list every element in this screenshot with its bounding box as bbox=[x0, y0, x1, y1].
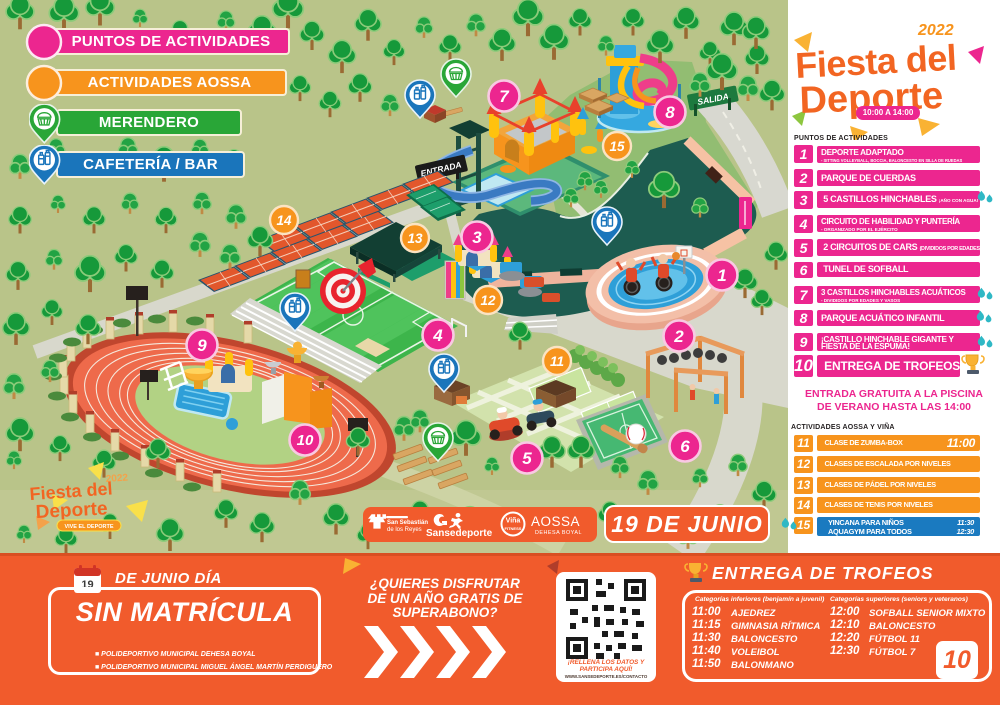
svg-text:14: 14 bbox=[276, 213, 292, 228]
svg-text:AOSSA: AOSSA bbox=[531, 514, 580, 529]
svg-text:5: 5 bbox=[522, 449, 532, 468]
svg-text:4: 4 bbox=[432, 326, 443, 345]
svg-text:VIVE EL DEPORTE: VIVE EL DEPORTE bbox=[64, 524, 113, 530]
svg-text:DEHESA BOYAL: DEHESA BOYAL bbox=[535, 530, 582, 536]
svg-text:Sansedeporte: Sansedeporte bbox=[426, 528, 493, 539]
svg-text:3: 3 bbox=[472, 228, 482, 247]
svg-text:Viña: Viña bbox=[506, 518, 521, 525]
svg-text:6: 6 bbox=[680, 437, 690, 456]
svg-text:1: 1 bbox=[717, 266, 726, 285]
svg-text:FITNESS: FITNESS bbox=[505, 526, 522, 531]
svg-text:de los Reyes: de los Reyes bbox=[387, 527, 422, 533]
svg-text:2: 2 bbox=[673, 327, 684, 346]
svg-text:San Sebastián: San Sebastián bbox=[387, 520, 428, 526]
svg-text:7: 7 bbox=[499, 87, 510, 106]
svg-text:9: 9 bbox=[197, 336, 207, 355]
svg-text:12: 12 bbox=[480, 293, 496, 308]
svg-text:11: 11 bbox=[550, 354, 564, 369]
svg-text:15: 15 bbox=[609, 139, 625, 154]
svg-text:10: 10 bbox=[297, 432, 314, 449]
svg-text:13: 13 bbox=[407, 231, 423, 246]
svg-text:8: 8 bbox=[665, 103, 675, 122]
svg-text:Deporte: Deporte bbox=[35, 498, 108, 523]
